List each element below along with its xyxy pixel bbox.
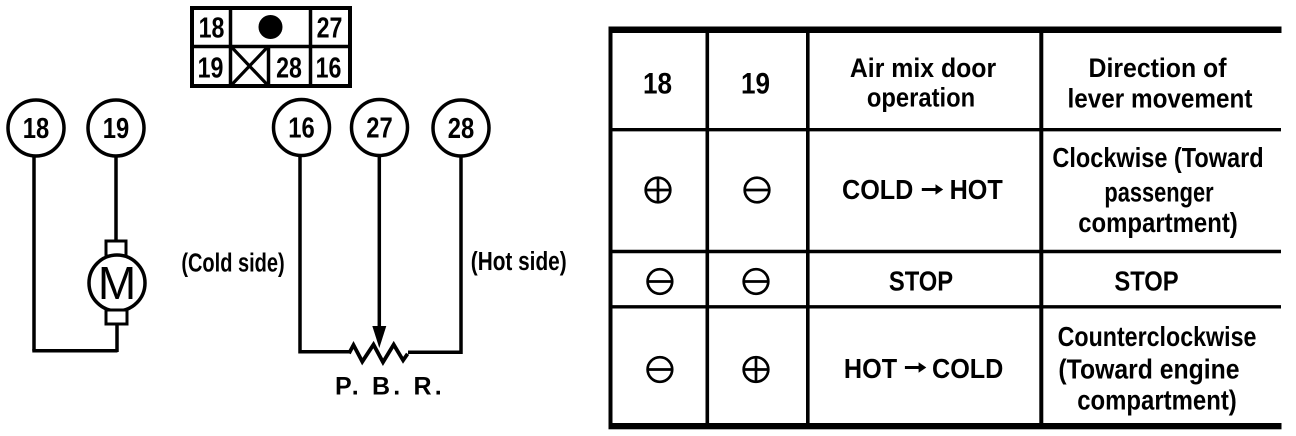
svg-text:passenger: passenger — [1104, 177, 1213, 208]
svg-text:STOP: STOP — [1114, 265, 1178, 297]
svg-text:lever movement: lever movement — [1068, 84, 1253, 113]
svg-text:Air mix door: Air mix door — [850, 54, 996, 83]
svg-text:Counterclockwise: Counterclockwise — [1058, 322, 1257, 352]
svg-text:27: 27 — [366, 111, 392, 144]
svg-text:(Hot side): (Hot side) — [471, 247, 567, 276]
svg-text:19: 19 — [198, 51, 224, 84]
svg-text:19: 19 — [103, 112, 129, 145]
svg-text:compartment): compartment) — [1077, 384, 1237, 416]
svg-text:operation: operation — [867, 83, 975, 113]
svg-text:16: 16 — [288, 111, 314, 144]
svg-text:(Cold side): (Cold side) — [181, 248, 284, 277]
svg-text:Direction of: Direction of — [1089, 54, 1227, 83]
svg-text:27: 27 — [317, 11, 343, 44]
svg-text:M: M — [98, 257, 136, 309]
svg-text:28: 28 — [448, 112, 474, 145]
svg-text:18: 18 — [23, 112, 49, 145]
svg-text:STOP: STOP — [889, 265, 953, 297]
svg-text:HOT: HOT — [844, 353, 897, 385]
svg-text:COLD: COLD — [932, 353, 1003, 385]
svg-text:COLD: COLD — [842, 174, 913, 206]
svg-text:Clockwise (Toward: Clockwise (Toward — [1052, 143, 1263, 173]
svg-text:18: 18 — [643, 67, 672, 100]
svg-text:HOT: HOT — [950, 174, 1003, 206]
svg-text:P. B. R.: P. B. R. — [335, 373, 445, 401]
svg-text:(Toward engine: (Toward engine — [1058, 353, 1239, 385]
svg-text:28: 28 — [276, 51, 302, 84]
svg-text:compartment): compartment) — [1078, 206, 1238, 238]
svg-text:16: 16 — [316, 51, 342, 84]
svg-text:19: 19 — [741, 67, 770, 100]
svg-text:18: 18 — [199, 11, 225, 44]
